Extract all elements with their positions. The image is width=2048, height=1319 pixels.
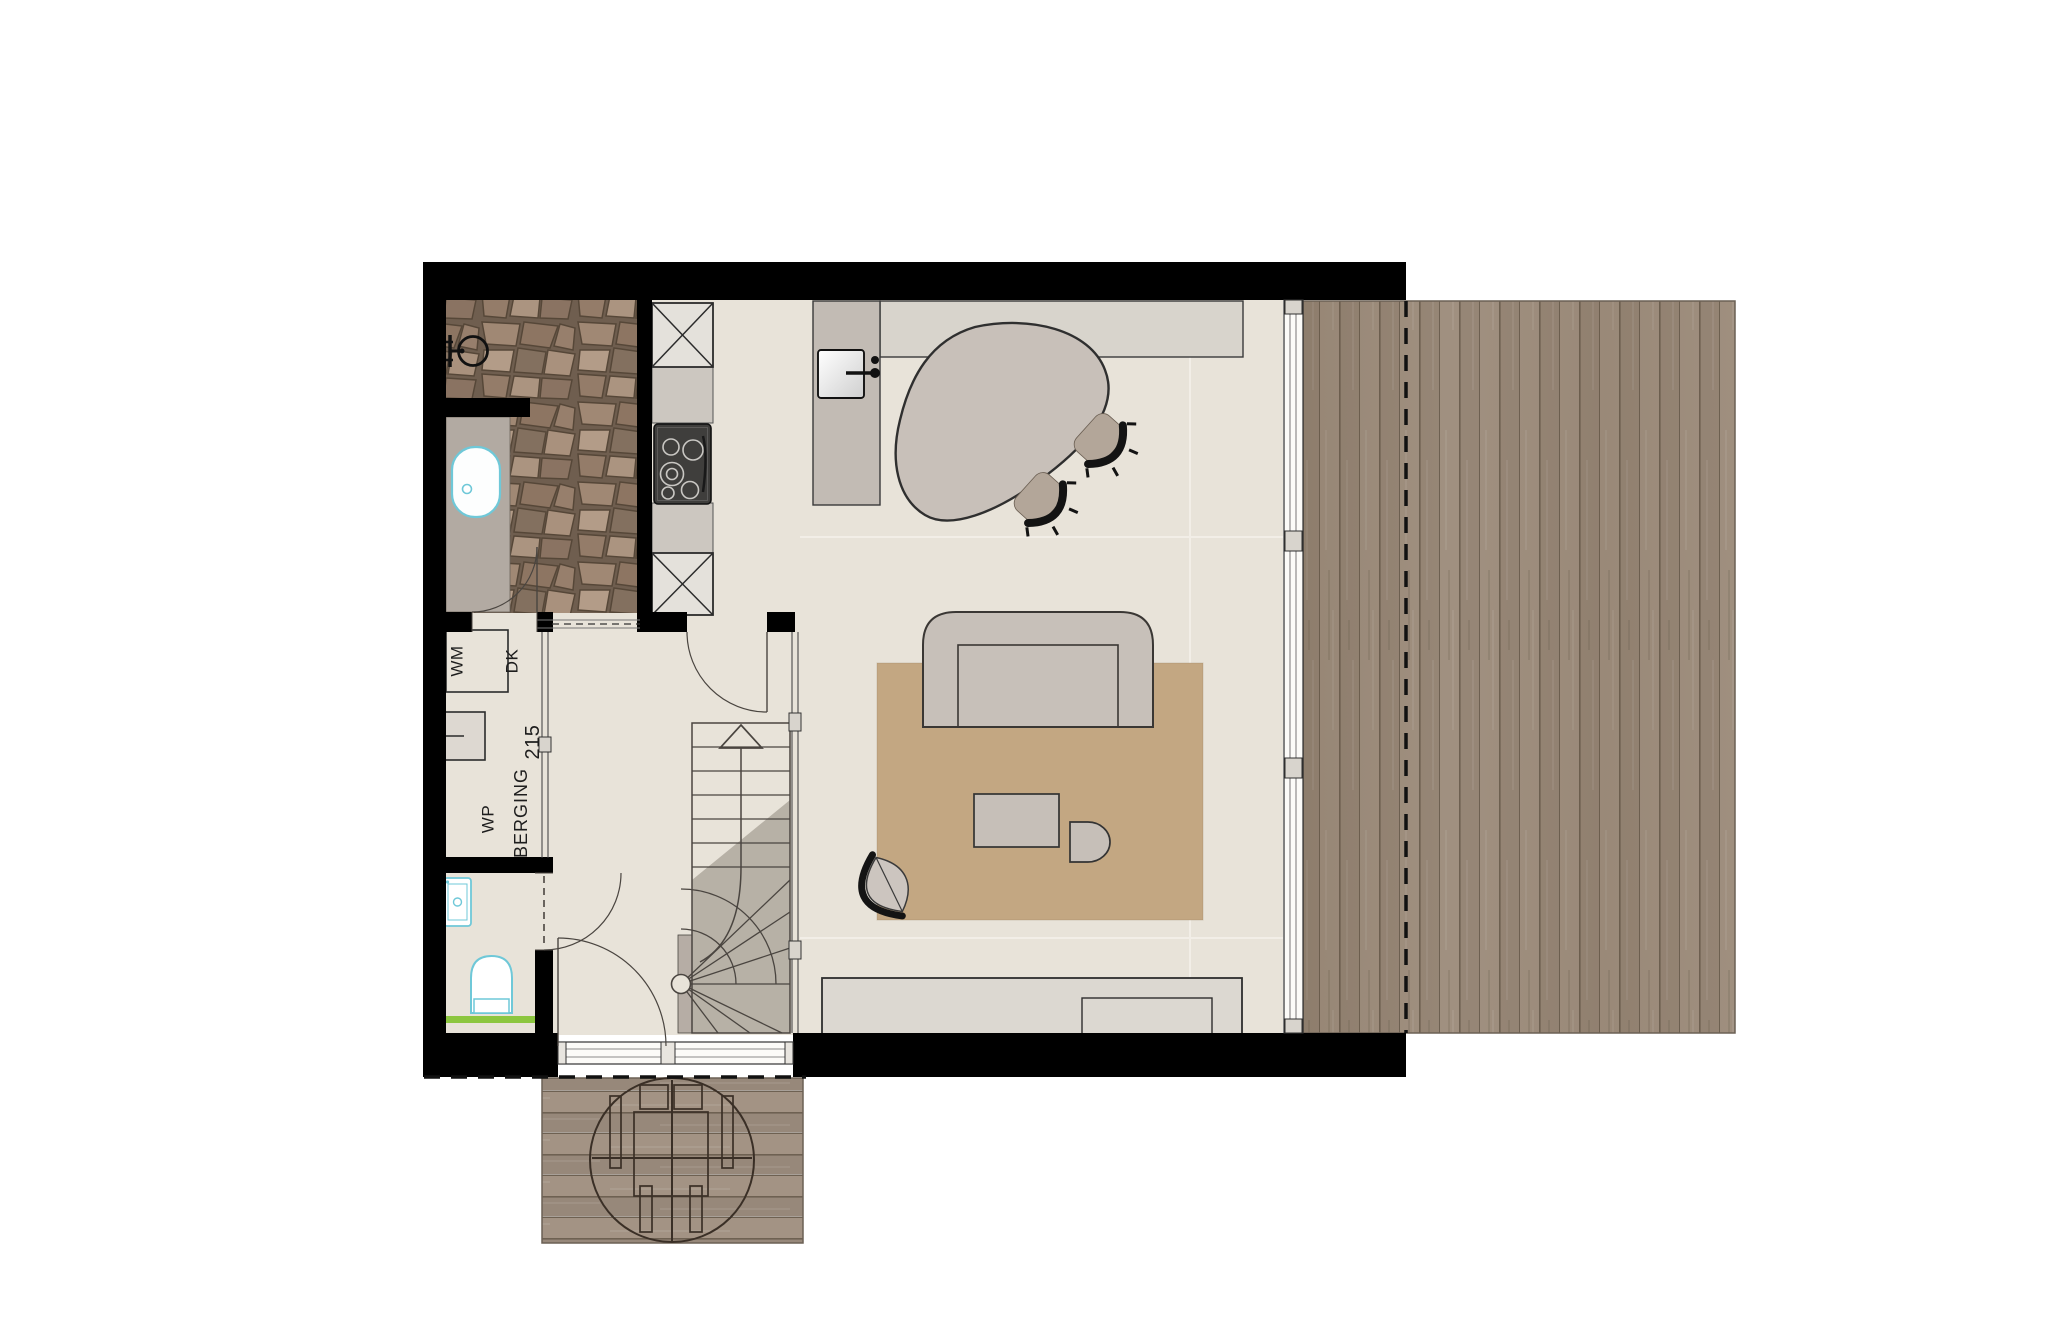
floor-plan-canvas: WM DK WP BERGING 215 [0, 0, 2048, 1319]
tv-sideboard [822, 978, 1242, 1034]
kitchen-tall-cabinet-top [652, 303, 713, 367]
side-table [1070, 822, 1110, 862]
kitchen-island [813, 301, 880, 505]
wm-label: WM [448, 645, 466, 676]
floor-plan-drawing [0, 0, 2048, 1319]
kitchen-tall-cabinet-bottom [652, 553, 713, 615]
coffee-table [974, 794, 1059, 847]
dk-label: DK [504, 645, 522, 676]
berging-label: BERGING [473, 768, 551, 858]
washbasin-icon [452, 447, 500, 517]
cooktop-icon [654, 424, 711, 504]
toilet-shelf [438, 1016, 537, 1023]
dimension-215-label: 215 [480, 725, 566, 760]
sofa [923, 612, 1153, 727]
glass-wall-east [1284, 300, 1303, 1033]
toilet-washbasin-icon [444, 878, 471, 926]
deck-east [1303, 301, 1735, 1033]
wm-dk-label: WM DK [412, 645, 541, 676]
toilet-icon [471, 956, 512, 1013]
entry-glazing [558, 1042, 793, 1064]
